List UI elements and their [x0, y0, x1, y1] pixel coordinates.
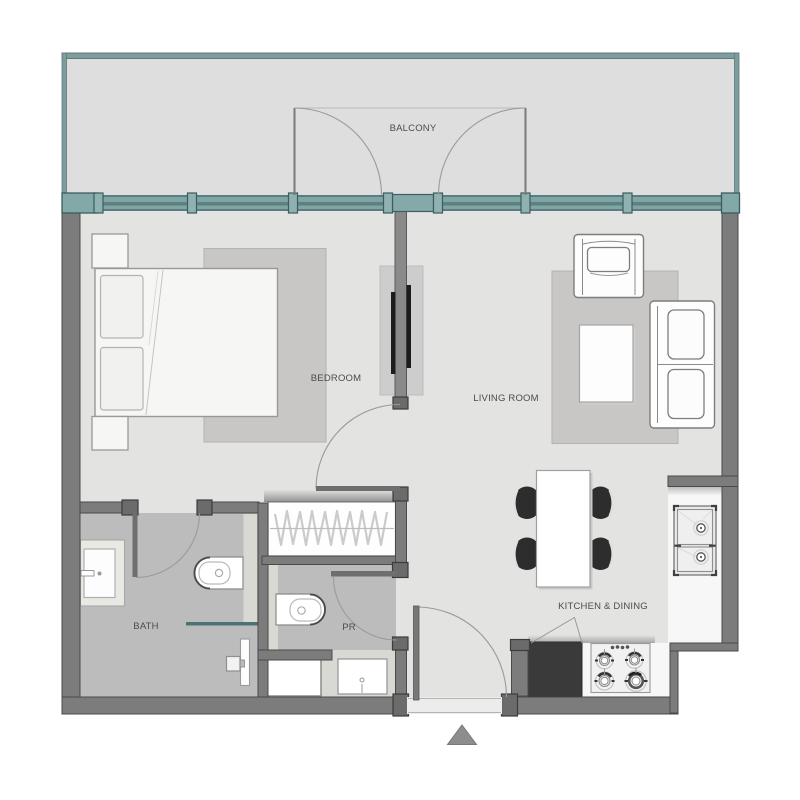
- svg-text:LIVING ROOM: LIVING ROOM: [473, 393, 539, 404]
- svg-text:KITCHEN & DINING: KITCHEN & DINING: [558, 601, 648, 612]
- svg-text:BALCONY: BALCONY: [390, 123, 437, 134]
- svg-text:PR: PR: [342, 622, 356, 633]
- svg-text:BATH: BATH: [133, 621, 158, 632]
- svg-text:BEDROOM: BEDROOM: [311, 373, 362, 384]
